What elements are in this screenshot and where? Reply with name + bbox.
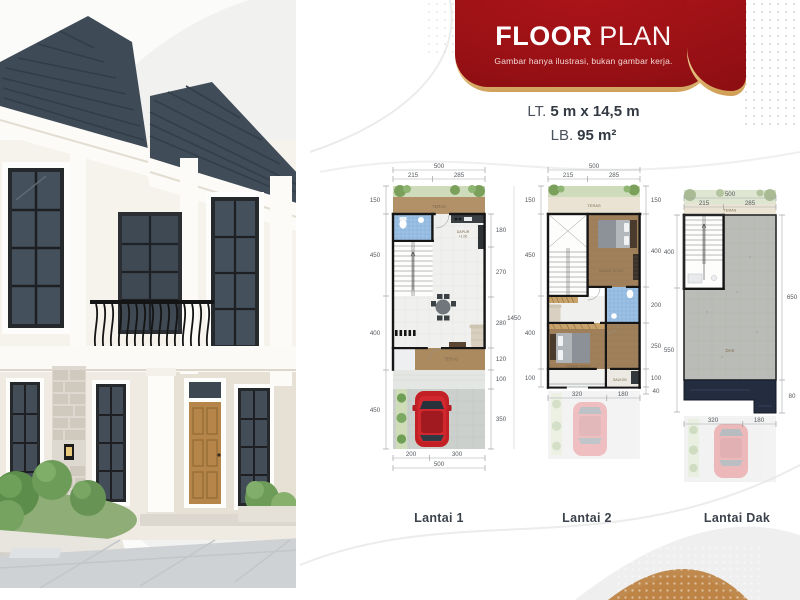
svg-text:350: 350 xyxy=(496,416,507,423)
stairs xyxy=(548,214,588,296)
svg-text:285: 285 xyxy=(454,172,465,179)
plan-label-lantai-2: Lantai 2 xyxy=(512,511,662,525)
svg-text:285: 285 xyxy=(745,200,756,207)
svg-text:285: 285 xyxy=(609,172,620,179)
svg-text:400: 400 xyxy=(525,330,536,337)
svg-text:180: 180 xyxy=(754,417,765,424)
svg-text:650: 650 xyxy=(787,294,798,301)
land-size: LT.5 m x 14,5 m xyxy=(455,103,712,120)
svg-text:450: 450 xyxy=(370,407,381,414)
svg-text:200: 200 xyxy=(651,302,662,309)
svg-text:150: 150 xyxy=(651,197,662,204)
ground-context xyxy=(548,391,640,459)
specs: LT.5 m x 14,5 m LB.95 m² xyxy=(455,103,712,151)
bedroom-2: KAMAR TIDUR xyxy=(548,323,606,369)
svg-text:TERAS: TERAS xyxy=(587,203,601,208)
svg-text:215: 215 xyxy=(408,172,419,179)
building-size-value: 95 m² xyxy=(577,127,616,144)
svg-text:180: 180 xyxy=(618,391,629,398)
wardrobe xyxy=(548,296,578,303)
dimensions-top: 500 215 285 xyxy=(393,163,485,182)
building-size-label: LB. xyxy=(551,127,574,144)
svg-text:400: 400 xyxy=(664,249,675,256)
svg-text:+1.00: +1.00 xyxy=(459,235,468,239)
land-size-label: LT. xyxy=(527,103,546,120)
svg-text:TERAS: TERAS xyxy=(432,204,446,209)
svg-text:40: 40 xyxy=(653,388,660,395)
svg-text:150: 150 xyxy=(370,197,381,204)
house-render xyxy=(0,0,300,588)
balcony-room: BALKON xyxy=(606,369,640,387)
land-size-value: 5 m x 14,5 m xyxy=(550,103,639,120)
car xyxy=(413,391,452,447)
banner-red-body: FLOORPLAN Gambar hanya ilustrasi, bukan … xyxy=(455,0,712,87)
svg-text:KAMAR TIDUR: KAMAR TIDUR xyxy=(599,269,624,273)
svg-text:320: 320 xyxy=(708,417,719,424)
svg-text:BALKON: BALKON xyxy=(613,378,627,382)
svg-text:450: 450 xyxy=(525,252,536,259)
floor-plan-flyer: FLOORPLAN Gambar hanya ilustrasi, bukan … xyxy=(0,0,800,600)
svg-text:400: 400 xyxy=(651,248,662,255)
svg-text:100: 100 xyxy=(651,375,662,382)
dimensions-top: 500 215 285 xyxy=(548,163,640,182)
bathroom xyxy=(393,214,433,241)
entry-step xyxy=(393,370,485,389)
banner-subtitle: Gambar hanya ilustrasi, bukan gambar ker… xyxy=(494,56,672,66)
sofa xyxy=(549,305,562,323)
svg-text:320: 320 xyxy=(572,391,583,398)
bedroom-1: KAMAR TIDUR xyxy=(588,214,640,287)
svg-text:80: 80 xyxy=(789,393,796,400)
svg-text:DAK: DAK xyxy=(725,348,734,353)
bathroom xyxy=(606,287,640,323)
sofa xyxy=(470,325,486,348)
svg-text:150: 150 xyxy=(525,197,536,204)
wall-lamp xyxy=(64,444,74,460)
floor-plan-banner: FLOORPLAN Gambar hanya ilustrasi, bukan … xyxy=(455,0,712,92)
plan-lantai-1: 500 215 285 TERAS xyxy=(363,162,523,474)
banner-title-secondary: PLAN xyxy=(599,21,672,51)
building-size: LB.95 m² xyxy=(455,127,712,144)
svg-text:450: 450 xyxy=(370,252,381,259)
svg-text:500: 500 xyxy=(589,163,600,170)
svg-text:250: 250 xyxy=(651,343,662,350)
svg-text:500: 500 xyxy=(725,191,736,198)
svg-text:300: 300 xyxy=(452,451,463,458)
ground-context xyxy=(684,416,776,482)
carport-roof xyxy=(684,380,776,413)
tv-cabinet xyxy=(449,342,466,348)
svg-text:DAPUR: DAPUR xyxy=(457,230,470,234)
svg-text:120: 120 xyxy=(496,356,507,363)
plan-label-lantai-dak: Lantai Dak xyxy=(662,511,800,525)
corridor xyxy=(606,323,640,369)
side-porch xyxy=(393,348,415,370)
stairs xyxy=(683,214,725,290)
svg-text:100: 100 xyxy=(525,375,536,382)
plan-lantai-2: 500 215 285 TERAS xyxy=(518,162,678,474)
svg-text:180: 180 xyxy=(496,227,507,234)
svg-text:TERAS: TERAS xyxy=(724,209,737,213)
svg-text:550: 550 xyxy=(664,347,675,354)
plan-label-lantai-1: Lantai 1 xyxy=(364,511,514,525)
svg-text:500: 500 xyxy=(434,461,445,468)
plan-lantai-dak: TERAS 500 215 285 DAK xyxy=(662,162,800,492)
banner-title-primary: FLOOR xyxy=(495,21,592,51)
svg-text:500: 500 xyxy=(434,163,445,170)
svg-text:TERAS: TERAS xyxy=(444,357,458,362)
stairs xyxy=(393,241,433,296)
svg-text:215: 215 xyxy=(563,172,574,179)
banner-title: FLOORPLAN xyxy=(495,23,672,50)
svg-text:400: 400 xyxy=(370,330,381,337)
svg-text:270: 270 xyxy=(496,269,507,276)
svg-text:280: 280 xyxy=(496,320,507,327)
svg-text:100: 100 xyxy=(496,376,507,383)
svg-text:200: 200 xyxy=(406,451,417,458)
svg-text:215: 215 xyxy=(699,200,710,207)
